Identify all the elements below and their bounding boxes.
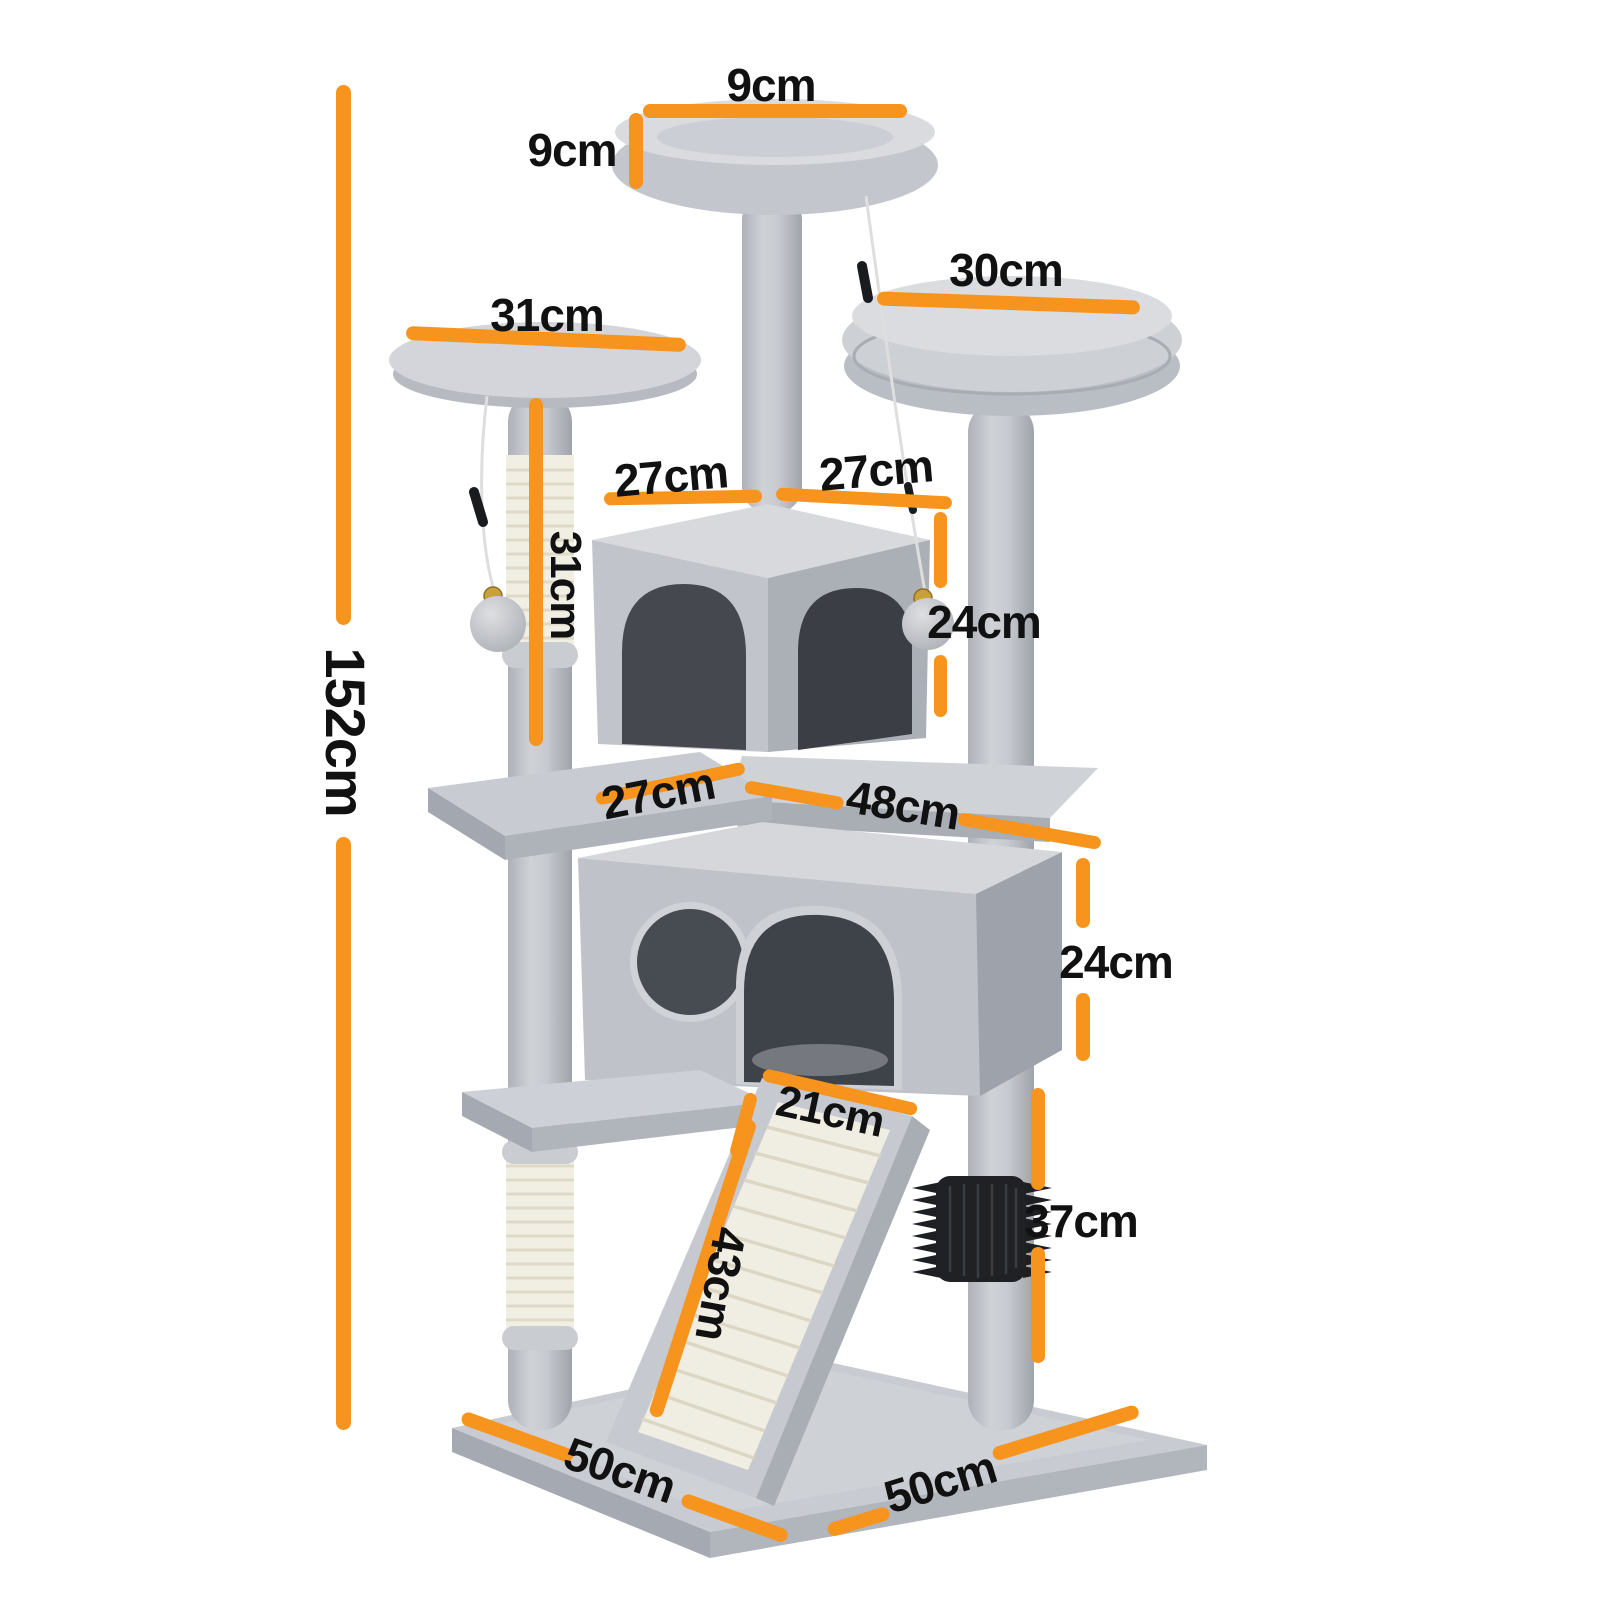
upper-condo	[592, 504, 930, 752]
dim-line-lower-condo-height-bottom	[1076, 993, 1090, 1061]
dim-label-left-post-height: 31cm	[543, 531, 587, 640]
dim-line-total-height-lower	[336, 837, 351, 1430]
dim-line-front-post-height-top	[1031, 1088, 1045, 1190]
dim-label-right-perch-width: 30cm	[949, 247, 1063, 293]
dim-line-top-perch-height	[629, 113, 643, 189]
dim-label-left-platform-width: 31cm	[490, 292, 604, 338]
dim-label-lower-condo-height: 24cm	[1059, 939, 1173, 985]
dim-label-upper-condo-right: 27cm	[817, 442, 934, 498]
dim-label-top-perch-height: 9cm	[527, 127, 616, 173]
lower-condo	[578, 822, 1062, 1096]
dim-label-upper-condo-left: 27cm	[612, 448, 729, 504]
lower-ledge	[462, 1070, 768, 1152]
dim-label-front-post-height: 37cm	[1024, 1198, 1138, 1244]
dim-label-top-perch-width: 9cm	[726, 62, 815, 108]
dim-line-upper-condo-height-top	[934, 512, 947, 588]
dim-line-total-height-upper	[336, 85, 351, 625]
dim-label-total-height: 152cm	[317, 647, 373, 816]
dim-line-front-post-height-bottom	[1031, 1247, 1045, 1363]
dim-line-upper-condo-height-bottom	[934, 655, 947, 717]
dim-label-upper-condo-height: 24cm	[927, 599, 1041, 645]
dim-line-lower-condo-height-top	[1076, 858, 1090, 928]
product-diagram: 9cm 9cm 30cm 31cm 27cm 27cm 31cm 152cm 2…	[0, 0, 1600, 1600]
